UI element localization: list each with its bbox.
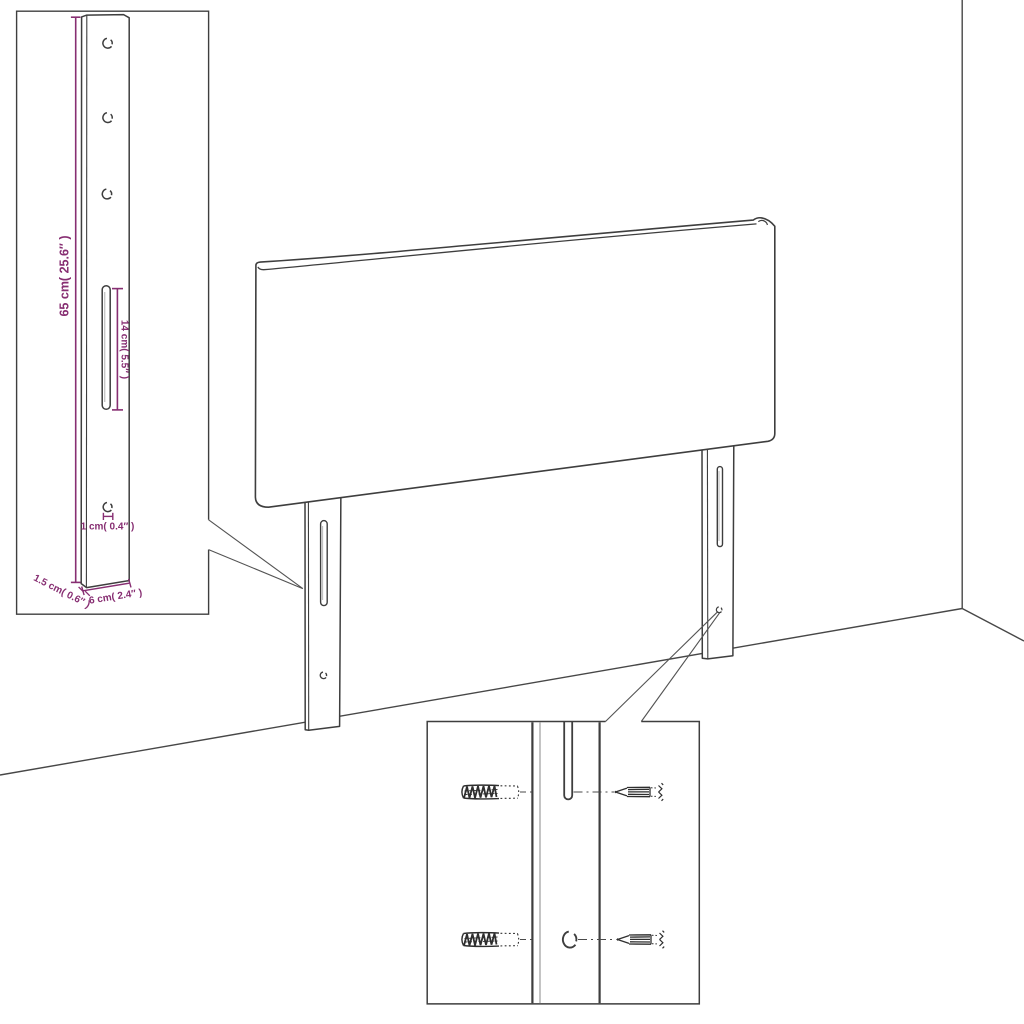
svg-text:65 cm( 25.6″ ): 65 cm( 25.6″ ) [58,235,72,316]
svg-text:14 cm( 5.5″ ): 14 cm( 5.5″ ) [119,320,130,379]
svg-text:1 cm( 0.4″ ): 1 cm( 0.4″ ) [81,522,135,533]
